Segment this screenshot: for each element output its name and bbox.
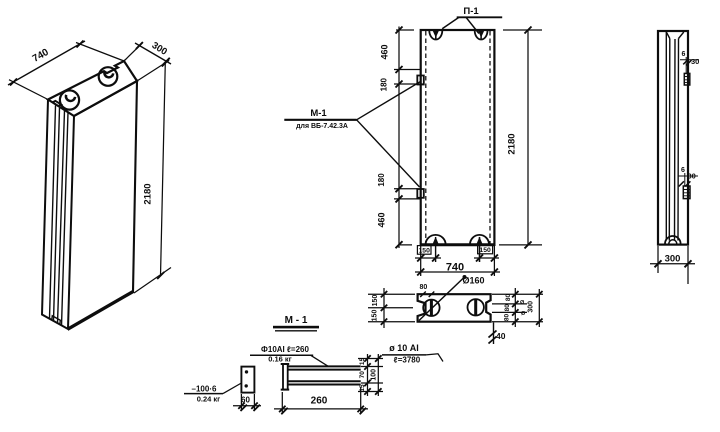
svg-text:0.16 кг: 0.16 кг [268,355,292,364]
svg-text:460: 460 [380,44,390,59]
svg-text:Ø: Ø [521,311,526,317]
svg-text:460: 460 [377,212,387,227]
svg-text:для ВБ-7.42.3А: для ВБ-7.42.3А [296,123,348,130]
svg-text:80: 80 [504,304,511,312]
svg-text:Ø: Ø [520,300,525,306]
svg-text:300: 300 [528,301,535,313]
svg-text:30: 30 [688,172,696,181]
svg-text:300: 300 [665,254,681,265]
svg-text:150: 150 [372,295,379,307]
svg-text:ℓ=3780: ℓ=3780 [394,356,421,365]
svg-text:15: 15 [359,384,366,392]
svg-text:ø 10 АI: ø 10 АI [389,343,419,353]
svg-text:2180: 2180 [507,133,518,154]
svg-text:–100·6: –100·6 [192,385,217,394]
svg-text:100: 100 [371,369,378,381]
svg-text:70: 70 [359,371,366,379]
svg-text:180: 180 [377,173,386,187]
svg-text:40: 40 [496,331,506,341]
svg-text:М-1: М-1 [310,108,327,119]
svg-text:80: 80 [504,314,511,322]
svg-text:80: 80 [505,294,512,302]
svg-text:150: 150 [479,247,491,254]
svg-text:6: 6 [682,51,686,58]
svg-text:0.24 кг: 0.24 кг [197,395,221,404]
svg-text:6: 6 [681,167,685,174]
svg-text:Ф10АI ℓ=260: Ф10АI ℓ=260 [261,345,309,354]
svg-text:80: 80 [420,284,428,291]
svg-text:150: 150 [419,248,431,255]
svg-text:30: 30 [691,57,699,66]
svg-text:М - 1: М - 1 [285,315,308,326]
svg-text:2180: 2180 [143,183,154,204]
svg-text:740: 740 [446,262,464,274]
svg-text:260: 260 [311,396,328,407]
svg-text:15: 15 [359,358,366,366]
svg-text:180: 180 [380,77,389,91]
svg-text:П-1: П-1 [463,6,479,17]
svg-text:150: 150 [372,310,379,322]
svg-text:60: 60 [241,396,250,405]
